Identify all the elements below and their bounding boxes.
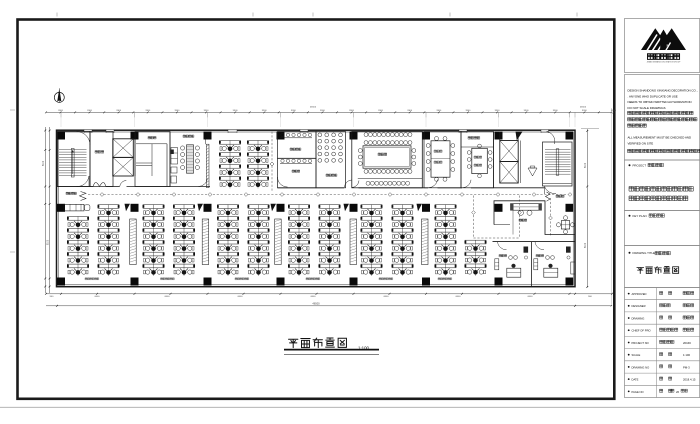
svg-text:6600: 6600 [165, 296, 171, 298]
svg-text:8100: 8100 [48, 239, 50, 245]
svg-text:PM-3: PM-3 [683, 365, 690, 369]
svg-text:3300: 3300 [320, 110, 326, 112]
svg-text:SCALE: SCALE [632, 353, 641, 357]
svg-text:3300: 3300 [204, 110, 210, 112]
svg-text:3300: 3300 [262, 110, 268, 112]
svg-text:6600: 6600 [95, 296, 101, 298]
svg-text:6600: 6600 [384, 296, 390, 298]
svg-text:3300: 3300 [407, 110, 413, 112]
svg-text:. ANYONE WHO DUPLICATE OR USE: . ANYONE WHO DUPLICATE OR USE [628, 94, 678, 98]
svg-text:CHIEF OF PRO: CHIEF OF PRO [632, 329, 651, 333]
svg-text:46500: 46500 [312, 301, 320, 305]
svg-text:DRAWING TITLE: DRAWING TITLE [633, 251, 656, 255]
svg-text:3300: 3300 [378, 110, 384, 112]
svg-text:26: 26 [676, 390, 680, 394]
svg-text:2018.4.15: 2018.4.15 [683, 378, 696, 382]
svg-text:3300: 3300 [553, 110, 559, 112]
svg-text:DRAWING NO: DRAWING NO [632, 365, 650, 369]
svg-text:3300: 3300 [233, 110, 239, 112]
svg-text:3300: 3300 [116, 110, 122, 112]
svg-text:3300: 3300 [291, 110, 297, 112]
svg-text:DO NOT SCALE DRAWINGS: DO NOT SCALE DRAWINGS [628, 106, 666, 110]
svg-text:8100: 8100 [43, 160, 45, 166]
svg-text:2016K: 2016K [683, 341, 691, 345]
svg-text:3300: 3300 [87, 110, 93, 112]
svg-text:46500: 46500 [310, 106, 317, 108]
svg-text:DESIGN SHANDONG XINXIANG DECOR: DESIGN SHANDONG XINXIANG DECORATION CO. … [628, 89, 699, 93]
svg-text:3300: 3300 [465, 110, 471, 112]
svg-text:3300: 3300 [58, 110, 64, 112]
svg-text:3300: 3300 [436, 110, 442, 112]
svg-text:3300: 3300 [582, 110, 588, 112]
svg-text:1:100: 1:100 [683, 353, 690, 357]
svg-text:8100: 8100 [585, 242, 587, 248]
svg-text:ALL MEASUREMENT MUST BE CHECKE: ALL MEASUREMENT MUST BE CHECKED AND [628, 136, 692, 140]
svg-text:6600: 6600 [456, 296, 462, 298]
svg-text:NEEDS TO OBTAIN WRITTEN AUTHOR: NEEDS TO OBTAIN WRITTEN AUTHORIZATION [628, 100, 692, 104]
svg-text:3300: 3300 [495, 110, 501, 112]
svg-text:3300: 3300 [145, 110, 151, 112]
svg-text:KEY PLAN: KEY PLAN [633, 214, 647, 218]
svg-text:3300: 3300 [349, 110, 355, 112]
svg-text:6600: 6600 [311, 296, 317, 298]
svg-text:JINAN XINXIANG DECORATION GROU: JINAN XINXIANG DECORATION GROUP [647, 61, 682, 64]
svg-text:6600: 6600 [238, 296, 244, 298]
svg-text:3300: 3300 [174, 110, 180, 112]
svg-text:DATE: DATE [632, 378, 639, 382]
svg-text:VERIFIED ON SITE: VERIFIED ON SITE [628, 141, 654, 145]
svg-text:PROJECT: PROJECT [633, 164, 647, 168]
svg-text:46500: 46500 [580, 106, 587, 108]
svg-text:PAGE NO: PAGE NO [632, 390, 644, 394]
svg-text:PROJECT NO: PROJECT NO [632, 341, 649, 345]
svg-text:APPROVED: APPROVED [632, 292, 647, 296]
svg-text:3300: 3300 [524, 110, 530, 112]
svg-text:6600: 6600 [528, 296, 534, 298]
svg-text:8100: 8100 [585, 162, 587, 168]
svg-text:DESIGNER: DESIGNER [632, 304, 646, 308]
svg-text:DRAWING: DRAWING [632, 316, 645, 320]
